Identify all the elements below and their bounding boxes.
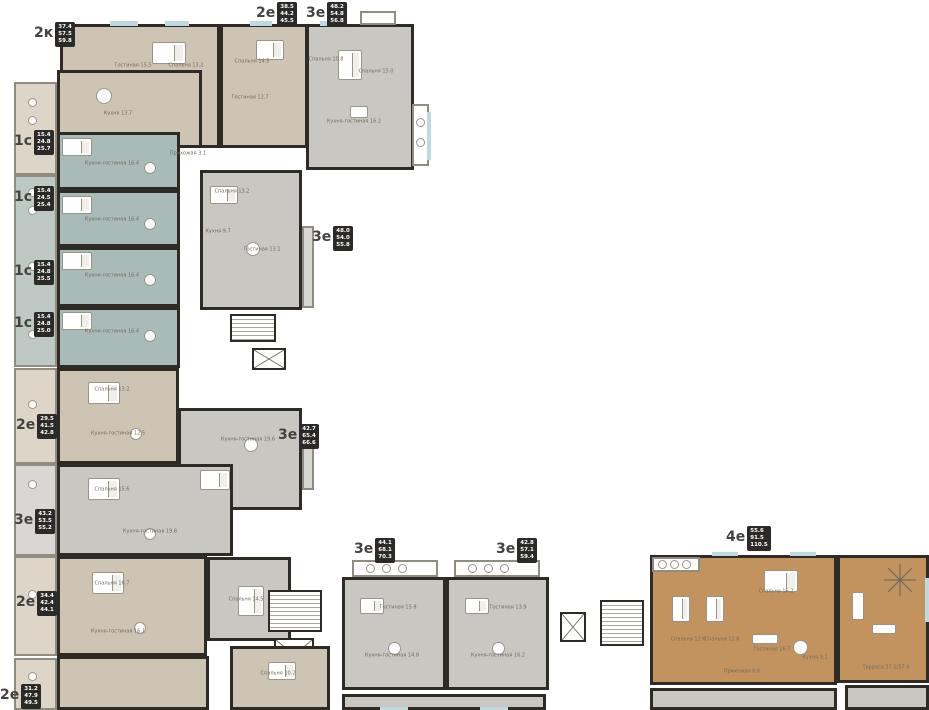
- room-label: Спальня 13.2: [215, 189, 250, 195]
- elevator-icon: [560, 612, 586, 642]
- area-value: 15.4: [37, 262, 51, 269]
- balcony-chair-icon: [28, 480, 37, 489]
- window: [165, 21, 189, 26]
- balcony-chair-icon: [468, 564, 477, 573]
- staircase-icon: [600, 600, 644, 646]
- room-label: Кухня-гостиная 16.2: [327, 119, 381, 125]
- balcony-chair-icon: [28, 672, 37, 681]
- area-badge: 48.054.055.8: [333, 226, 353, 251]
- area-value: 68.1: [378, 547, 392, 554]
- partial-apartment-bottom-mid: [342, 694, 546, 710]
- area-badge: 42.857.159.4: [517, 538, 537, 563]
- balcony-chair-icon: [416, 118, 425, 127]
- area-value: 44.1: [40, 607, 54, 614]
- room-label: Кухня 9.1: [802, 655, 827, 661]
- room-label: Гостиная 13.9: [489, 605, 526, 611]
- area-value: 54.0: [336, 235, 350, 242]
- sofa-icon: [852, 592, 864, 620]
- area-value: 37.4: [58, 24, 72, 31]
- apartment-label-apt-1s-4[interactable]: 1с15.424.825.0: [14, 312, 54, 337]
- apartment-3e-bottom-1-area[interactable]: [342, 577, 446, 690]
- area-badge: 15.424.825.5: [34, 260, 54, 285]
- area-value: 24.8: [37, 139, 51, 146]
- balcony-chair-icon: [28, 98, 37, 107]
- balcony-chair-icon: [382, 564, 391, 573]
- apartment-type-label: 2к: [34, 22, 53, 44]
- apartment-label-apt-2e-left-2[interactable]: 2е34.442.444.1: [16, 591, 57, 616]
- room-label: Кухня-гостиная 16.2: [471, 653, 525, 659]
- area-value: 48.0: [336, 228, 350, 235]
- area-value: 42.8: [520, 540, 534, 547]
- apartment-label-apt-4e-right[interactable]: 4е55.691.5110.5: [726, 526, 771, 551]
- area-value: 48.2: [330, 4, 344, 11]
- balcony-chair-icon: [416, 138, 425, 147]
- area-value: 42.7: [302, 426, 316, 433]
- floor-plan: 2к37.457.559.82е38.544.245.53е48.254.856…: [0, 0, 929, 710]
- apartment-type-label: 2е: [16, 414, 35, 436]
- apartment-type-label: 3е: [354, 538, 373, 560]
- room-label: Кухня-гостиная 16.4: [85, 161, 139, 167]
- area-value: 55.2: [38, 525, 52, 532]
- sofa-icon: [752, 634, 778, 644]
- apartment-type-label: 2е: [16, 591, 35, 613]
- room-label: Кухня-гостиная 19.8: [123, 529, 177, 535]
- area-value: 15.4: [37, 188, 51, 195]
- room-label: Кухня 9.7: [205, 229, 230, 235]
- balcony-chair-icon: [28, 116, 37, 125]
- room-label: Спальня 16.2: [759, 589, 794, 595]
- bed-icon: [152, 42, 186, 64]
- area-value: 55.6: [750, 528, 767, 535]
- room-label: Спальня 13.2: [95, 387, 130, 393]
- room-label: Спальня 12.6: [705, 637, 740, 643]
- area-value: 25.5: [37, 276, 51, 283]
- balcony-chair-icon: [366, 564, 375, 573]
- apartment-label-apt-1s-2[interactable]: 1с15.424.525.4: [14, 186, 54, 211]
- area-value: 110.5: [750, 542, 767, 549]
- balcony-chair-icon: [484, 564, 493, 573]
- room-label: Терраса 17.1/57.4: [863, 665, 910, 671]
- table-icon: [144, 274, 156, 286]
- area-value: 24.8: [37, 269, 51, 276]
- area-value: 43.2: [38, 511, 52, 518]
- table-icon: [350, 106, 368, 118]
- room-label: Кухня 13.7: [104, 111, 132, 117]
- area-badge: 42.765.466.6: [299, 424, 319, 449]
- room-label: Гостиная 15.8: [379, 605, 416, 611]
- area-value: 59.8: [58, 38, 72, 45]
- area-value: 24.5: [37, 195, 51, 202]
- area-value: 42.8: [40, 430, 54, 437]
- table-icon: [793, 640, 808, 655]
- apartment-3e-bottom-2-area[interactable]: [446, 577, 549, 690]
- room-label: Гостиная 12.7: [231, 95, 268, 101]
- area-value: 44.2: [280, 11, 294, 18]
- area-value: 25.0: [37, 328, 51, 335]
- apartment-type-label: 4е: [726, 526, 745, 548]
- area-badge: 55.691.5110.5: [747, 526, 770, 551]
- table-icon: [96, 88, 112, 104]
- bed-icon: [256, 40, 284, 60]
- chair-icon: [872, 624, 896, 634]
- room-label: Спальня 13.2: [169, 63, 204, 69]
- apartment-2e-bottom-left-area[interactable]: [57, 656, 209, 710]
- room-label: Гостиная 16.7: [753, 647, 790, 653]
- apartment-label-apt-3e-bottom-1[interactable]: 3е44.168.170.3: [354, 538, 395, 563]
- area-value: 56.8: [330, 18, 344, 25]
- window: [110, 21, 138, 26]
- apartment-type-label: 3е: [496, 538, 515, 560]
- apartment-type-label: 3е: [14, 509, 33, 531]
- apartment-label-apt-2e-left-1[interactable]: 2е29.541.542.8: [16, 414, 57, 439]
- plant-icon: [882, 562, 918, 598]
- apartment-label-apt-3e-bottom-2[interactable]: 3е42.857.159.4: [496, 538, 537, 563]
- room-label: Кухня-гостиная 14.8: [365, 653, 419, 659]
- apartment-label-apt-2e-top[interactable]: 2е38.544.245.5: [256, 2, 297, 27]
- room-label: Кухня-гостиная 16.4: [85, 217, 139, 223]
- window: [790, 552, 816, 556]
- room-label: Кухня-гостиная 19.6: [221, 437, 275, 443]
- apartment-label-apt-3e-mid-top[interactable]: 3е48.054.055.8: [312, 226, 353, 251]
- bed-icon: [706, 596, 724, 622]
- room-label: Спальня 16.7: [95, 581, 130, 587]
- apartment-type-label: 3е: [278, 424, 297, 446]
- bed-icon: [465, 598, 489, 614]
- balcony-chair-icon: [500, 564, 509, 573]
- area-value: 24.8: [37, 321, 51, 328]
- balcony-chair-icon: [682, 560, 691, 569]
- bed-icon: [62, 138, 92, 156]
- area-value: 41.5: [40, 423, 54, 430]
- area-badge: 29.541.542.8: [37, 414, 57, 439]
- window: [712, 552, 738, 556]
- apartment-type-label: 3е: [306, 2, 325, 24]
- area-badge: 38.544.245.5: [277, 2, 297, 27]
- area-value: 15.4: [37, 314, 51, 321]
- bed-icon: [672, 596, 690, 622]
- apartment-type-label: 1с: [14, 130, 32, 152]
- balcony-3e-top-small: [360, 11, 396, 25]
- partial-apartment-bottom-right: [845, 685, 929, 710]
- area-value: 15.4: [37, 132, 51, 139]
- area-value: 25.4: [37, 202, 51, 209]
- room-label: Спальня 15.6: [95, 487, 130, 493]
- area-value: 53.5: [38, 518, 52, 525]
- bed-icon: [62, 196, 92, 214]
- partial-apartment-bottom: [650, 688, 837, 710]
- area-value: 57.1: [520, 547, 534, 554]
- apartment-type-label: 2е: [256, 2, 275, 24]
- balcony-chair-icon: [28, 400, 37, 409]
- apartment-type-label: 1с: [14, 186, 32, 208]
- area-value: 25.7: [37, 146, 51, 153]
- area-value: 66.6: [302, 440, 316, 447]
- table-icon: [144, 162, 156, 174]
- area-value: 45.5: [280, 18, 294, 25]
- area-value: 54.8: [330, 11, 344, 18]
- apartment-label-apt-3e-left[interactable]: 3е43.253.555.2: [14, 509, 55, 534]
- area-badge: 15.424.825.7: [34, 130, 54, 155]
- apartment-type-label: 1с: [14, 312, 32, 334]
- room-label: Спальня 12.6: [671, 637, 706, 643]
- balcony-left-top: [14, 82, 57, 175]
- room-label: Спальня 14.5: [235, 59, 270, 65]
- area-value: 55.8: [336, 242, 350, 249]
- window: [925, 578, 929, 622]
- room-label: Спальня 14.5: [229, 597, 264, 603]
- area-badge: 37.457.559.8: [55, 22, 75, 47]
- apartment-type-label: 2е: [0, 684, 19, 706]
- area-value: 34.4: [40, 593, 54, 600]
- table-icon: [144, 330, 156, 342]
- elevator-icon: [252, 348, 286, 370]
- bed-icon: [338, 50, 362, 80]
- room-label: Спальня 10.8: [309, 57, 344, 63]
- room-label: Спальня 15.0: [359, 69, 394, 75]
- apartment-3e-top-area[interactable]: [306, 24, 414, 170]
- area-value: 47.9: [24, 693, 38, 700]
- apartment-type-label: 3е: [312, 226, 331, 248]
- staircase-icon: [268, 590, 322, 632]
- apartment-label-apt-2e-bottom-left[interactable]: 2е31.247.949.5: [0, 684, 41, 709]
- room-label: Кухня-гостиная 16.4: [85, 273, 139, 279]
- table-icon: [144, 218, 156, 230]
- staircase-icon: [230, 314, 276, 342]
- apartment-label-apt-3e-mid[interactable]: 3е42.765.466.6: [278, 424, 319, 449]
- area-value: 38.5: [280, 4, 294, 11]
- area-badge: 43.253.555.2: [35, 509, 55, 534]
- balcony-chair-icon: [398, 564, 407, 573]
- window: [427, 112, 431, 160]
- area-value: 49.5: [24, 700, 38, 707]
- bed-icon: [200, 470, 230, 490]
- apartment-label-apt-2k-top[interactable]: 2к37.457.559.8: [34, 22, 75, 47]
- apartment-label-apt-3e-top[interactable]: 3е48.254.856.8: [306, 2, 347, 27]
- apartment-type-label: 1с: [14, 260, 32, 282]
- room-label: Гостиная 13.1: [243, 247, 280, 253]
- room-label: Кухня-гостиная 12.5: [91, 431, 145, 437]
- room-label: Спальня 10.2: [261, 671, 296, 677]
- area-badge: 31.247.949.5: [21, 684, 41, 709]
- room-label: Гостиная 15.5: [114, 63, 151, 69]
- area-value: 70.3: [378, 554, 392, 561]
- area-value: 42.4: [40, 600, 54, 607]
- area-badge: 48.254.856.8: [327, 2, 347, 27]
- area-value: 29.5: [40, 416, 54, 423]
- room-label: Прихожая 3.1: [170, 151, 206, 157]
- area-value: 44.1: [378, 540, 392, 547]
- apartment-2e-left-2-area[interactable]: [57, 556, 207, 656]
- area-badge: 15.424.825.0: [34, 312, 54, 337]
- area-value: 57.5: [58, 31, 72, 38]
- area-value: 65.4: [302, 433, 316, 440]
- room-label: Кухня-гостиная 16.4: [85, 329, 139, 335]
- area-value: 91.5: [750, 535, 767, 542]
- area-value: 59.4: [520, 554, 534, 561]
- balcony-chair-icon: [658, 560, 667, 569]
- room-label: Кухня-гостиная 16.1: [91, 629, 145, 635]
- apartment-label-apt-1s-1[interactable]: 1с15.424.825.7: [14, 130, 54, 155]
- balcony-chair-icon: [670, 560, 679, 569]
- area-badge: 44.168.170.3: [375, 538, 395, 563]
- bed-icon: [62, 252, 92, 270]
- room-label: Прихожая 6.6: [724, 669, 760, 675]
- area-value: 31.2: [24, 686, 38, 693]
- apartment-label-apt-1s-3[interactable]: 1с15.424.825.5: [14, 260, 54, 285]
- area-badge: 34.442.444.1: [37, 591, 57, 616]
- area-badge: 15.424.525.4: [34, 186, 54, 211]
